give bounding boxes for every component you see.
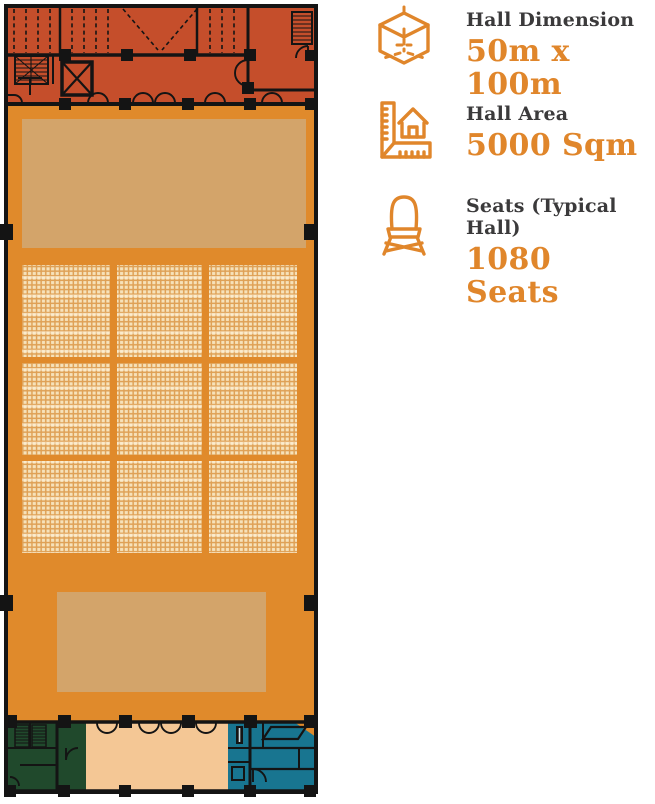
ruler-house-icon [372,98,436,164]
stage-platform [22,119,306,248]
info-label: Hall Dimension [466,10,652,32]
cube-icon [372,4,436,70]
chair-icon [372,190,436,256]
info-value: 50m x 100m [466,35,652,101]
seating-blocks [22,265,297,553]
info-row-hall-dimension: Hall Dimension 50m x 100m [372,4,652,101]
info-value: 5000 Sqm [466,129,638,162]
rear-platform [57,592,266,692]
info-row-seats: Seats (Typical Hall) 1080 Seats [372,190,652,309]
info-value: 1080 Seats [466,243,652,309]
info-row-hall-area: Hall Area 5000 Sqm [372,98,652,164]
page: Hall Dimension 50m x 100m Hall Area 5000… [0,0,655,800]
floor-plan-container [0,0,330,800]
floor-plan [0,0,330,800]
info-label: Hall Area [466,104,638,126]
info-label: Seats (Typical Hall) [466,196,652,240]
